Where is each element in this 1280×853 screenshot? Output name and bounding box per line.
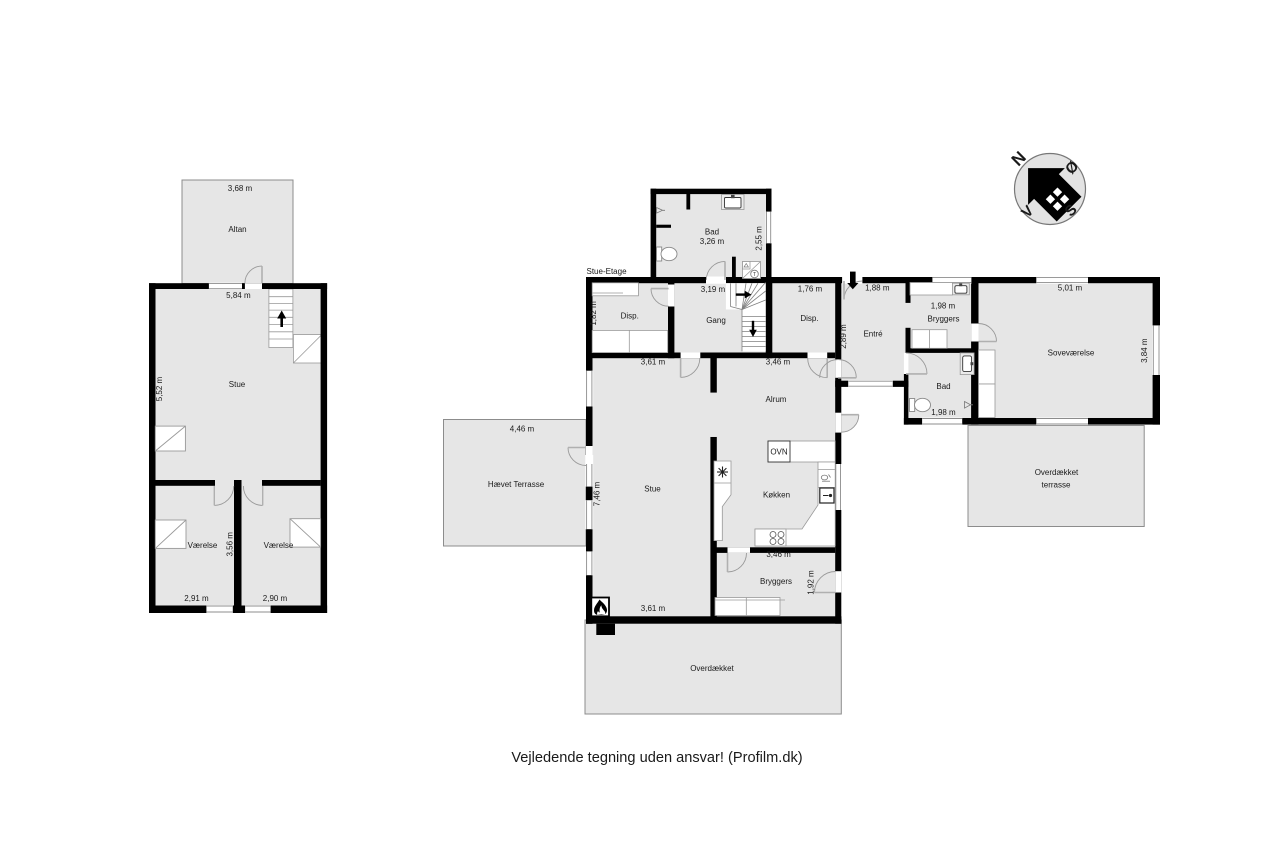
- svg-text:Disp.: Disp.: [800, 314, 818, 323]
- svg-text:3,68 m: 3,68 m: [228, 184, 253, 193]
- svg-text:1,76 m: 1,76 m: [798, 285, 823, 294]
- svg-text:Bryggers: Bryggers: [760, 577, 792, 586]
- svg-text:Stue: Stue: [229, 380, 246, 389]
- svg-text:1,88 m: 1,88 m: [865, 284, 890, 293]
- svg-text:1,98 m: 1,98 m: [931, 408, 956, 417]
- svg-text:Stue-Etage: Stue-Etage: [587, 267, 628, 276]
- svg-text:Overdækket: Overdækket: [1035, 468, 1079, 477]
- svg-text:Værelse: Værelse: [264, 541, 294, 550]
- svg-text:2,91 m: 2,91 m: [184, 594, 209, 603]
- svg-text:2,55 m: 2,55 m: [755, 226, 764, 251]
- svg-text:T: T: [753, 272, 756, 278]
- svg-text:3,46 m: 3,46 m: [766, 550, 791, 559]
- svg-text:3,56 m: 3,56 m: [225, 532, 234, 557]
- svg-text:4,46 m: 4,46 m: [510, 425, 535, 434]
- svg-text:7,46 m: 7,46 m: [593, 481, 602, 506]
- svg-text:Altan: Altan: [228, 225, 246, 234]
- svg-text:Overdækket: Overdækket: [690, 664, 734, 673]
- svg-text:Disp.: Disp.: [621, 311, 639, 320]
- svg-text:3,19 m: 3,19 m: [701, 285, 726, 294]
- svg-text:1,82 m: 1,82 m: [589, 301, 598, 326]
- svg-text:1,92 m: 1,92 m: [807, 570, 816, 595]
- svg-text:Stue: Stue: [644, 485, 661, 494]
- svg-text:5,84 m: 5,84 m: [226, 291, 251, 300]
- svg-text:terrasse: terrasse: [1042, 481, 1071, 490]
- svg-text:2,90 m: 2,90 m: [263, 594, 288, 603]
- svg-text:Soveværelse: Soveværelse: [1048, 349, 1095, 358]
- svg-text:Alrum: Alrum: [766, 395, 787, 404]
- svg-text:Bryggers: Bryggers: [927, 315, 959, 324]
- svg-text:3,61 m: 3,61 m: [641, 604, 666, 613]
- svg-text:Bad: Bad: [936, 382, 950, 391]
- svg-text:3,84 m: 3,84 m: [1140, 338, 1149, 363]
- svg-text:Gang: Gang: [706, 316, 726, 325]
- svg-text:5,01 m: 5,01 m: [1058, 284, 1083, 293]
- svg-text:3,61 m: 3,61 m: [641, 358, 666, 367]
- svg-text:1,98 m: 1,98 m: [931, 302, 956, 311]
- svg-text:5,52 m: 5,52 m: [155, 376, 164, 401]
- svg-text:3,46 m: 3,46 m: [766, 358, 791, 367]
- svg-text:Entré: Entré: [863, 330, 883, 339]
- svg-text:OVN: OVN: [770, 448, 788, 457]
- svg-text:3,26 m: 3,26 m: [700, 237, 725, 246]
- svg-text:2,89 m: 2,89 m: [839, 324, 848, 349]
- svg-text:Bad: Bad: [705, 228, 719, 237]
- svg-text:Vejledende tegning uden ansvar: Vejledende tegning uden ansvar! (Profilm…: [511, 750, 802, 766]
- svg-text:Køkken: Køkken: [763, 491, 790, 500]
- svg-text:Hævet Terrasse: Hævet Terrasse: [488, 480, 545, 489]
- svg-text:Værelse: Værelse: [188, 541, 218, 550]
